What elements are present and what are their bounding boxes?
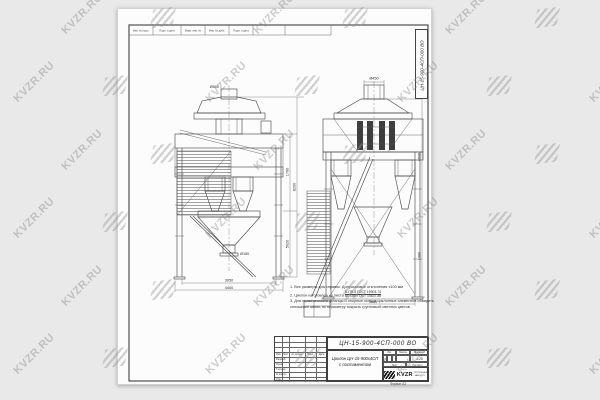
watermark-text: KVZR.RU: [587, 59, 600, 105]
drawing-canvas: Инв. № подл. Подп. и дата Взам. инв. № И…: [118, 9, 433, 386]
watermark-logo-icon: [534, 7, 560, 29]
dim-label-stub: Ø450: [369, 77, 378, 81]
watermark-text: KVZR.RU: [587, 331, 600, 377]
cyclone-side-view: Ø450: [304, 77, 425, 318]
watermark-text: KVZR.RU: [443, 0, 489, 37]
watermark-text: KVZR.RU: [59, 263, 105, 309]
document-designation: ЦН-15-900-4СП-000 ВО: [327, 337, 429, 350]
dim-label-bottom-inner: 3050: [225, 279, 233, 283]
org-logo-text: KVZR: [397, 372, 413, 378]
note-line: 3. Для герметичности фланцы и опорные ко…: [290, 299, 426, 305]
material-fraction: Б-ПН-5 ГОСТ 19903-74 ВСт3сп ГОСТ 14637-8…: [345, 291, 381, 300]
strip-cell-label: Взам. инв. №: [185, 29, 201, 33]
col-date: Дата: [316, 352, 327, 357]
org-name: КОТЕЛЬНЫЙ ЗАВОД.РУ: [414, 372, 428, 377]
watermark-text: KVZR.RU: [59, 0, 105, 37]
dim-label-right-overall: 8200: [293, 183, 297, 191]
strip-cell-label: Подп. и дата: [233, 29, 249, 33]
scale-value: 1:20: [410, 355, 429, 362]
dim-label-right-lower: 5020: [286, 240, 290, 248]
dim-label-bottom-outer: 4400: [225, 286, 233, 290]
row-utv: Утв.: [276, 377, 281, 382]
col-doc: № докум.: [289, 352, 305, 357]
drawing-frame: [129, 25, 428, 381]
strip-cell-label: Подп. и дата: [159, 29, 175, 33]
organization-cell: KVZR КОТЕЛЬНЫЙ ЗАВОД.РУ: [383, 367, 429, 382]
dim-label-right-upper: 1700: [286, 168, 290, 176]
technical-notes: 1. Все размеры для справок. Допускаемые …: [290, 285, 426, 310]
col-sign: Подп.: [305, 352, 316, 357]
strip-cell-label: Инв. № подл.: [133, 29, 149, 33]
watermark-logo-icon: [534, 143, 560, 165]
corner-designation-text: ЦН-15-900-4СП-000 ВО: [416, 30, 429, 100]
dim-label-stub: Ø500: [210, 85, 219, 89]
kvzr-logo-icon: [384, 371, 395, 379]
watermark-text: KVZR.RU: [443, 263, 489, 309]
drawing-sheet: Инв. № подл. Подп. и дата Взам. инв. № И…: [117, 8, 432, 385]
format-label: Формат А3: [368, 382, 428, 386]
watermark-text: KVZR.RU: [59, 127, 105, 173]
watermark-logo-icon: [486, 75, 512, 97]
watermark-logo-icon: [534, 279, 560, 301]
watermark-text: KVZR.RU: [11, 195, 57, 241]
dim-label-right-lower: 1380: [418, 252, 422, 260]
mass-value: [396, 355, 410, 362]
watermark-text: KVZR.RU: [11, 59, 57, 105]
top-strip: Инв. № подл. Подп. и дата Взам. инв. № И…: [129, 25, 331, 35]
note-line: 2. Циклон изготовлен из листа Б-ПН-5 ГОС…: [290, 291, 426, 300]
title-block-revision-grid: Изм. Лист № докум. Подп. Дата Разраб. Пр…: [275, 337, 327, 382]
note-line: сплошным швом, по периметру покрыть грун…: [290, 305, 426, 311]
dim-label-outlet: Ø150: [240, 252, 249, 256]
watermark-logo-icon: [486, 347, 512, 369]
cyclone-front-view: Ø150 3050 4400 1700 5020: [174, 85, 304, 292]
title-block: Изм. Лист № докум. Подп. Дата Разраб. Пр…: [274, 336, 428, 381]
corner-designation-box: ЦН-15-900-4СП-000 ВО: [415, 29, 428, 99]
strip-cell-label: Инв. № дубл.: [209, 29, 225, 33]
document-name: Циклон ЦН-15-900х4СП с постаментом: [327, 350, 383, 382]
watermark-logo-icon: [486, 211, 512, 233]
dim-label-right-upper: 4600: [418, 153, 422, 161]
watermark-text: KVZR.RU: [443, 127, 489, 173]
watermark-text: KVZR.RU: [587, 195, 600, 241]
watermark-text: KVZR.RU: [11, 331, 57, 377]
scanned-drawing-page: Инв. № подл. Подп. и дата Взам. инв. № И…: [0, 0, 600, 400]
